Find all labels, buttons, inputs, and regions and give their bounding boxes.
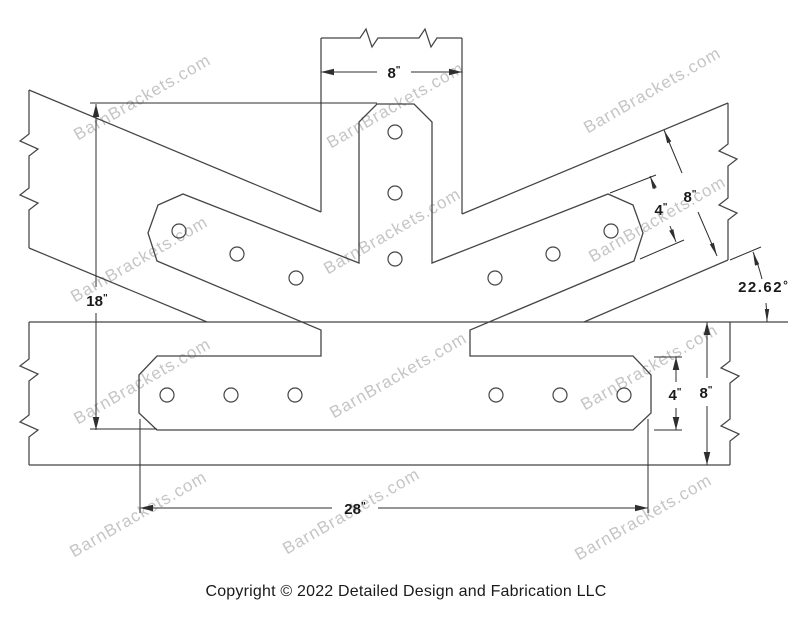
dim-arrow — [673, 417, 680, 430]
bolt-hole — [488, 271, 502, 285]
bolt-hole — [388, 125, 402, 139]
drawing-page: BarnBrackets.comBarnBrackets.comBarnBrac… — [0, 0, 800, 618]
dimension-label-bottom-beam-depth: 8" — [699, 385, 712, 402]
dim-arrow — [710, 243, 717, 256]
right-diagonal-beam-outline — [462, 103, 737, 322]
dimension-label-bottom-plate-width: 4" — [668, 387, 681, 404]
bolt-holes — [160, 125, 631, 402]
dim-arrow — [753, 252, 759, 266]
dimension-label-height: 18" — [86, 293, 108, 310]
watermark-text: BarnBrackets.com — [66, 467, 210, 561]
watermark-text: BarnBrackets.com — [326, 328, 470, 422]
watermark-text: BarnBrackets.com — [320, 184, 464, 278]
dim-arrow — [664, 130, 671, 143]
watermark-text: BarnBrackets.com — [70, 334, 214, 428]
bolt-hole — [553, 388, 567, 402]
post-outline — [321, 29, 462, 214]
dimension-label-angle: 22.62° — [738, 278, 788, 296]
bolt-hole — [230, 247, 244, 261]
dimension-plate-length: 28" — [140, 419, 648, 518]
dim-arrow — [765, 309, 769, 322]
bolt-hole — [224, 388, 238, 402]
dim-arrow — [321, 69, 334, 75]
bolt-hole — [160, 388, 174, 402]
bolt-hole — [388, 186, 402, 200]
dimensions: 8" 18" 28" 4" 8" — [86, 65, 788, 518]
watermark-text: BarnBrackets.com — [580, 43, 724, 137]
watermark-text: BarnBrackets.com — [585, 172, 729, 266]
bolt-hole — [546, 247, 560, 261]
watermark-text: BarnBrackets.com — [571, 470, 715, 564]
dimension-angle: 22.62° — [730, 247, 788, 322]
dimension-label-post-width: 8" — [387, 65, 400, 82]
watermark-text: BarnBrackets.com — [70, 50, 214, 144]
dim-arrow — [93, 417, 100, 430]
left-diagonal-beam-outline — [20, 90, 321, 322]
watermarks: BarnBrackets.comBarnBrackets.comBarnBrac… — [66, 43, 729, 564]
copyright-text: Copyright © 2022 Detailed Design and Fab… — [205, 583, 606, 600]
dim-arrow — [650, 176, 657, 189]
bracket-technical-drawing: BarnBrackets.comBarnBrackets.comBarnBrac… — [0, 0, 800, 618]
dim-arrow — [669, 229, 676, 242]
bolt-hole — [388, 252, 402, 266]
dim-arrow — [704, 452, 711, 465]
bolt-hole — [289, 271, 303, 285]
bolt-hole — [288, 388, 302, 402]
bolt-hole — [489, 388, 503, 402]
